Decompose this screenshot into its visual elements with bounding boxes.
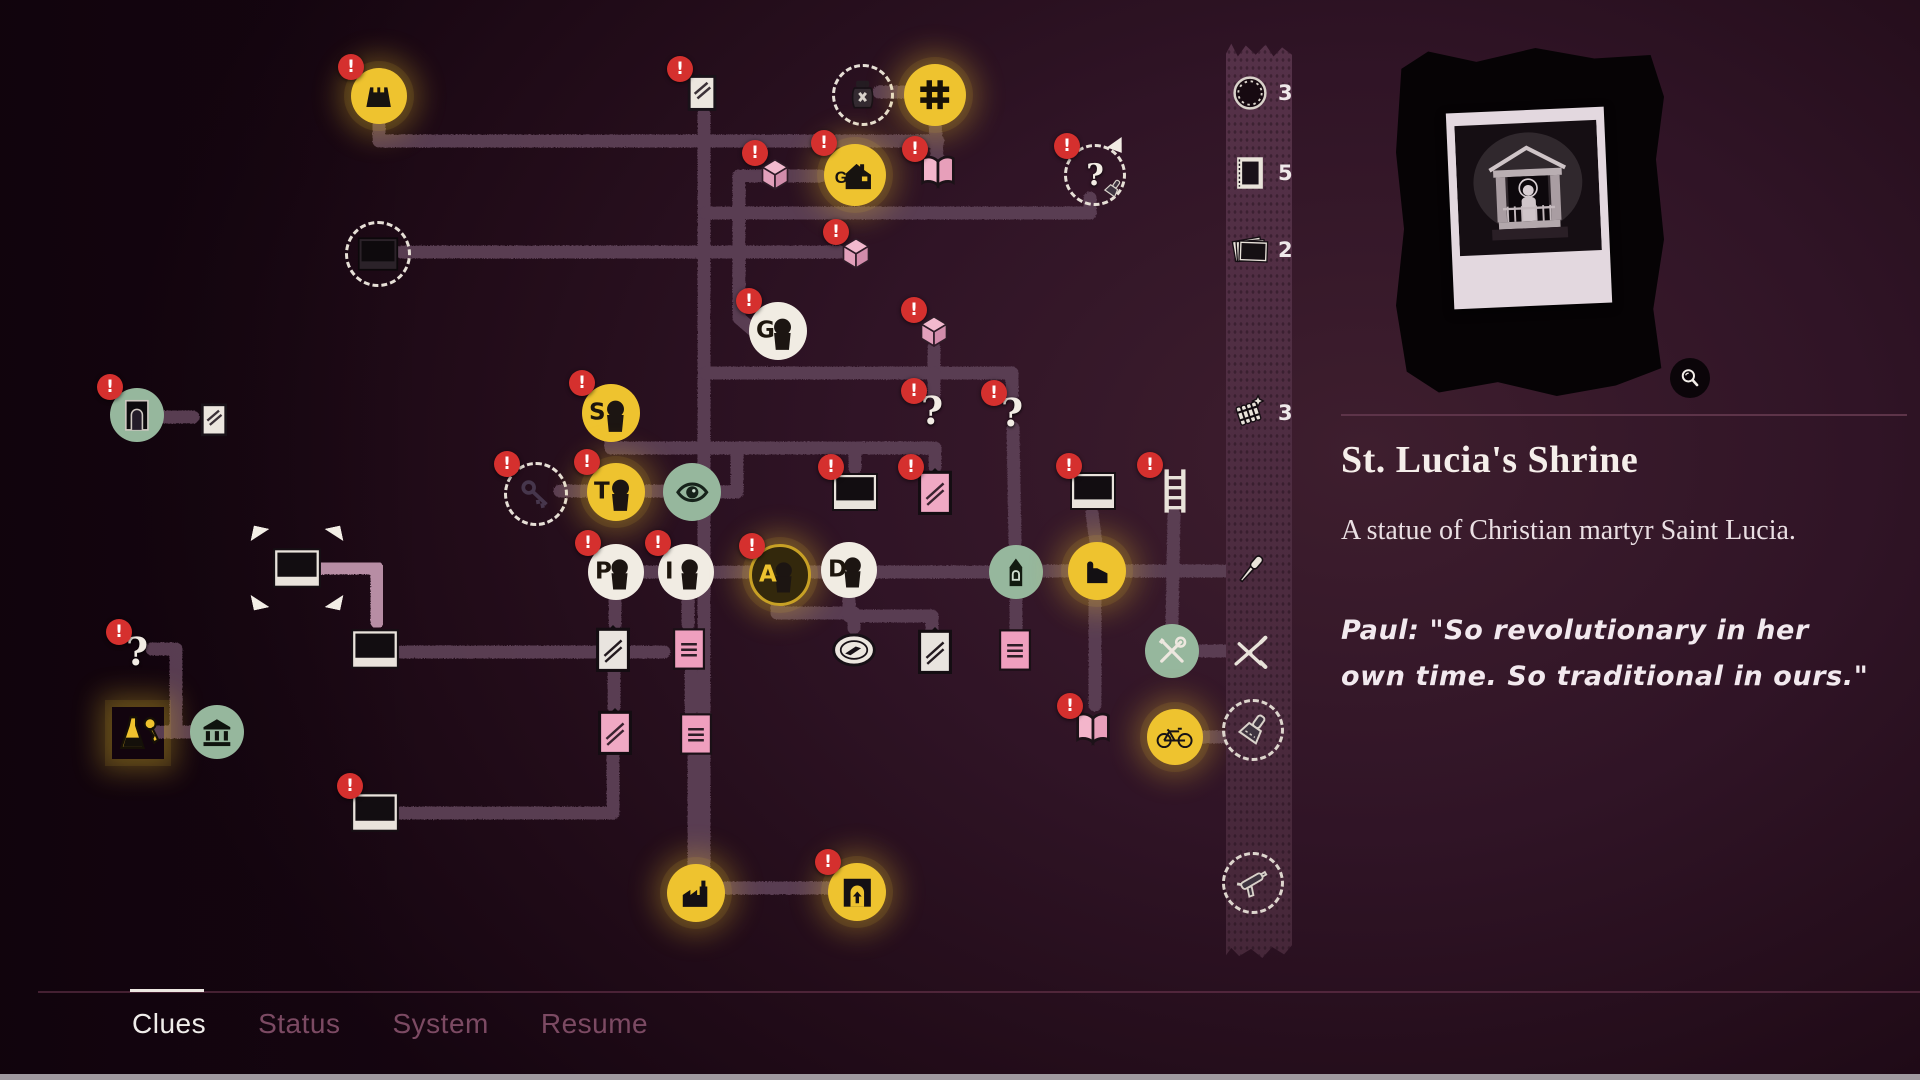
inventory-item-unknown-tool[interactable]: [1222, 852, 1284, 914]
connection-line: [706, 198, 1090, 213]
clue-node-photo-white[interactable]: !: [1069, 467, 1117, 515]
clue-node-paper-1[interactable]: [667, 627, 711, 671]
clue-node-question-1[interactable]: !?: [914, 392, 950, 428]
alert-badge: !: [898, 454, 924, 480]
clue-node-clip-white-2[interactable]: [911, 627, 959, 675]
clue-node-note-1[interactable]: !: [680, 70, 724, 114]
clue-node-doorway[interactable]: !: [828, 863, 886, 921]
alert-badge: !: [574, 449, 600, 475]
item-count: 2: [1278, 238, 1293, 262]
panel-divider: [1341, 414, 1907, 416]
clue-node-ladder[interactable]: !: [1150, 466, 1200, 516]
alert-badge: !: [1057, 693, 1083, 719]
clue-node-building-b[interactable]: [1068, 542, 1126, 600]
clue-node-church[interactable]: [989, 545, 1043, 599]
connection-line: [611, 440, 935, 467]
connection-line: [1092, 513, 1096, 543]
connection-line: [399, 757, 613, 813]
alert-badge: !: [739, 533, 765, 559]
alert-badge: !: [575, 530, 601, 556]
clue-node-bank[interactable]: [190, 705, 244, 759]
clue-node-photo-hidden[interactable]: [345, 221, 411, 287]
clue-node-photo-2[interactable]: [350, 624, 400, 674]
inventory-item-firecrackers[interactable]: 3: [1228, 391, 1272, 435]
clue-node-person-d[interactable]: D: [821, 542, 877, 598]
clue-node-question-3[interactable]: !?: [119, 633, 155, 669]
item-count: 3: [1278, 401, 1293, 425]
alert-badge: !: [818, 454, 844, 480]
clue-node-house-g[interactable]: !G: [824, 144, 886, 206]
clue-node-person-s[interactable]: !S: [582, 384, 640, 442]
alert-badge: !: [981, 380, 1007, 406]
clue-node-flask-keys[interactable]: [112, 707, 164, 759]
clue-node-bike[interactable]: [1147, 709, 1203, 765]
alert-badge: !: [1056, 453, 1082, 479]
clue-node-arch-door[interactable]: !: [110, 388, 164, 442]
inventory-item-screwdriver[interactable]: [1228, 548, 1272, 592]
alert-badge: !: [901, 297, 927, 323]
alert-badge: !: [106, 619, 132, 645]
inventory-item-pliers[interactable]: [1228, 628, 1272, 672]
alert-badge: !: [97, 374, 123, 400]
clue-node-paper-2[interactable]: [674, 712, 718, 756]
clue-description: A statue of Christian martyr Saint Lucia…: [1341, 512, 1811, 550]
clue-node-note-2[interactable]: [194, 399, 234, 439]
tab-resume[interactable]: Resume: [541, 1008, 648, 1040]
clue-node-book-2[interactable]: !: [1070, 707, 1116, 753]
clue-node-shrine-photo[interactable]: [272, 543, 322, 593]
connection-line: [1172, 514, 1174, 625]
connection-line: [706, 373, 1012, 395]
alert-badge: !: [494, 451, 520, 477]
shrine-photo-image: [1454, 115, 1602, 261]
node-letter: S: [589, 399, 606, 425]
alert-badge: !: [667, 56, 693, 82]
clue-node-clip-white-1[interactable]: [589, 625, 637, 673]
clue-node-jar[interactable]: [832, 64, 894, 126]
node-letter: D: [828, 556, 847, 582]
tab-bar: Clues Status System Resume: [132, 1008, 648, 1040]
alert-badge: !: [1137, 452, 1163, 478]
window-bottom-edge: [0, 1074, 1920, 1080]
clue-node-cube-1[interactable]: !: [755, 154, 795, 194]
clue-node-book-1[interactable]: !: [915, 150, 961, 196]
inventory-item-bottle-caps[interactable]: 3: [1228, 71, 1272, 115]
connection-line: [704, 114, 828, 888]
magnify-button[interactable]: [1670, 358, 1710, 398]
alert-badge: !: [338, 54, 364, 80]
alert-badge: !: [823, 219, 849, 245]
clue-node-photo-3[interactable]: !: [350, 787, 400, 837]
clue-photo[interactable]: [1446, 107, 1612, 310]
clue-board-screen: !!!!G!!?!!G!!!S!!T!!!?!?!!!P!I!AD!!?!! 3…: [0, 0, 1920, 1080]
magnifier-icon: [1677, 365, 1703, 391]
clue-node-clip-pink-1[interactable]: !: [911, 468, 959, 516]
alert-badge: !: [902, 136, 928, 162]
node-letter: P: [595, 558, 612, 584]
alert-badge: !: [901, 378, 927, 404]
clue-node-eye[interactable]: [663, 463, 721, 521]
connection-line: [1013, 428, 1015, 544]
connection-line: [849, 597, 932, 628]
clue-node-unknown-brush[interactable]: !?: [1064, 144, 1126, 206]
clue-title: St. Lucia's Shrine: [1341, 438, 1901, 482]
clue-node-paper-3[interactable]: [993, 628, 1037, 672]
connection-line: [722, 448, 737, 492]
clue-node-key[interactable]: !: [504, 462, 568, 526]
clue-node-castle[interactable]: !: [351, 68, 407, 124]
alert-badge: !: [569, 370, 595, 396]
connection-line: [321, 568, 377, 622]
clue-node-grid-cross[interactable]: [904, 64, 966, 126]
clue-node-person-t[interactable]: !T: [587, 463, 645, 521]
active-tab-indicator: [130, 989, 204, 992]
clue-quote: Paul: "So revolutionary in her own time.…: [1341, 608, 1881, 700]
inventory-item-matchbox[interactable]: 5: [1228, 151, 1272, 195]
clue-node-person-i[interactable]: !I: [658, 544, 714, 600]
clue-node-compass[interactable]: [831, 627, 877, 673]
node-letter: G: [756, 317, 775, 343]
connection-line: [379, 124, 938, 141]
clue-node-tools[interactable]: [1145, 624, 1199, 678]
item-count: 3: [1278, 81, 1293, 105]
clue-node-person-p[interactable]: !P: [588, 544, 644, 600]
clue-node-cube-3[interactable]: !: [914, 311, 954, 351]
svg-text:G: G: [835, 169, 848, 187]
alert-badge: !: [337, 773, 363, 799]
node-letter: A: [759, 561, 777, 587]
node-letter: T: [594, 478, 610, 504]
tab-status[interactable]: Status: [258, 1008, 340, 1040]
clue-node-factory[interactable]: [667, 864, 725, 922]
alert-badge: !: [815, 849, 841, 875]
alert-badge: !: [645, 530, 671, 556]
alert-badge: !: [736, 288, 762, 314]
item-count: 5: [1278, 161, 1293, 185]
inventory-item-scraper[interactable]: [1222, 699, 1284, 761]
clue-node-photo-center[interactable]: !: [831, 468, 879, 516]
alert-badge: !: [811, 130, 837, 156]
clue-node-question-2[interactable]: !?: [994, 394, 1030, 430]
clue-node-person-g[interactable]: !G: [749, 302, 807, 360]
inventory-item-photo-stack[interactable]: 2: [1228, 228, 1272, 272]
tab-bar-line: [38, 991, 1920, 993]
alert-badge: !: [1054, 133, 1080, 159]
clue-node-person-a[interactable]: !A: [749, 544, 811, 606]
tab-clues[interactable]: Clues: [132, 1008, 206, 1040]
tab-system[interactable]: System: [392, 1008, 488, 1040]
clue-node-cube-2[interactable]: !: [836, 233, 876, 273]
clue-node-clip-pink-2[interactable]: [591, 708, 639, 756]
alert-badge: !: [742, 140, 768, 166]
node-letter: I: [665, 558, 674, 584]
